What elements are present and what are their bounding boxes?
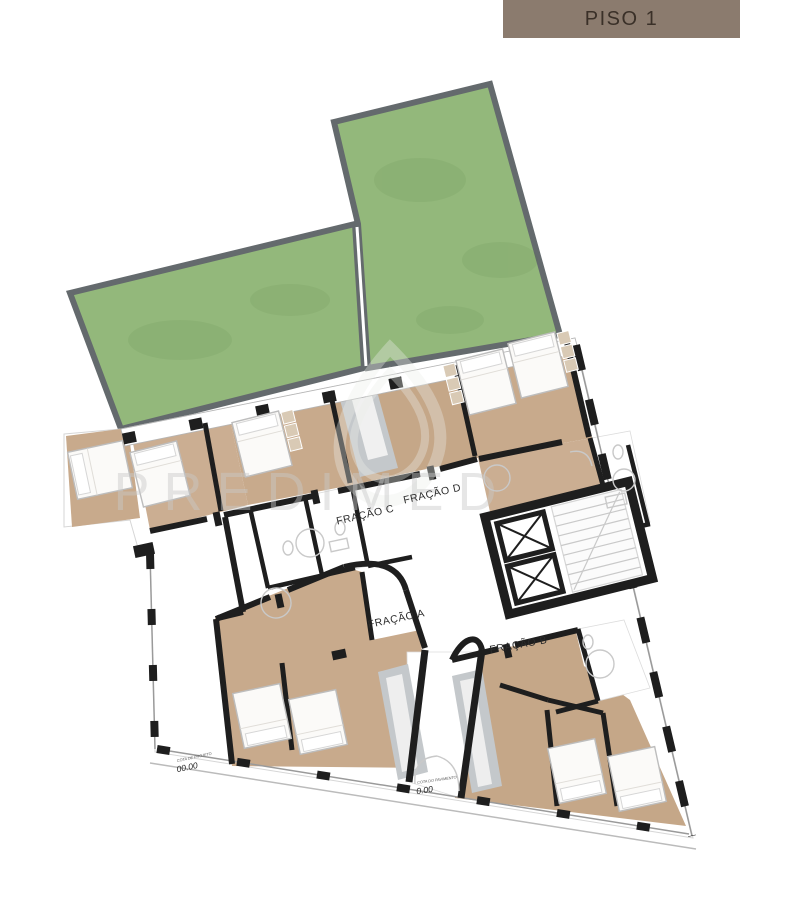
floor-plan-page: PISO 1 bbox=[0, 0, 789, 911]
floor-plan-canvas: PREDIMED FRAÇÃO A FRAÇÃO B FRAÇÃO C FRAÇ… bbox=[0, 0, 789, 911]
elevator-shaft-2 bbox=[507, 555, 563, 603]
